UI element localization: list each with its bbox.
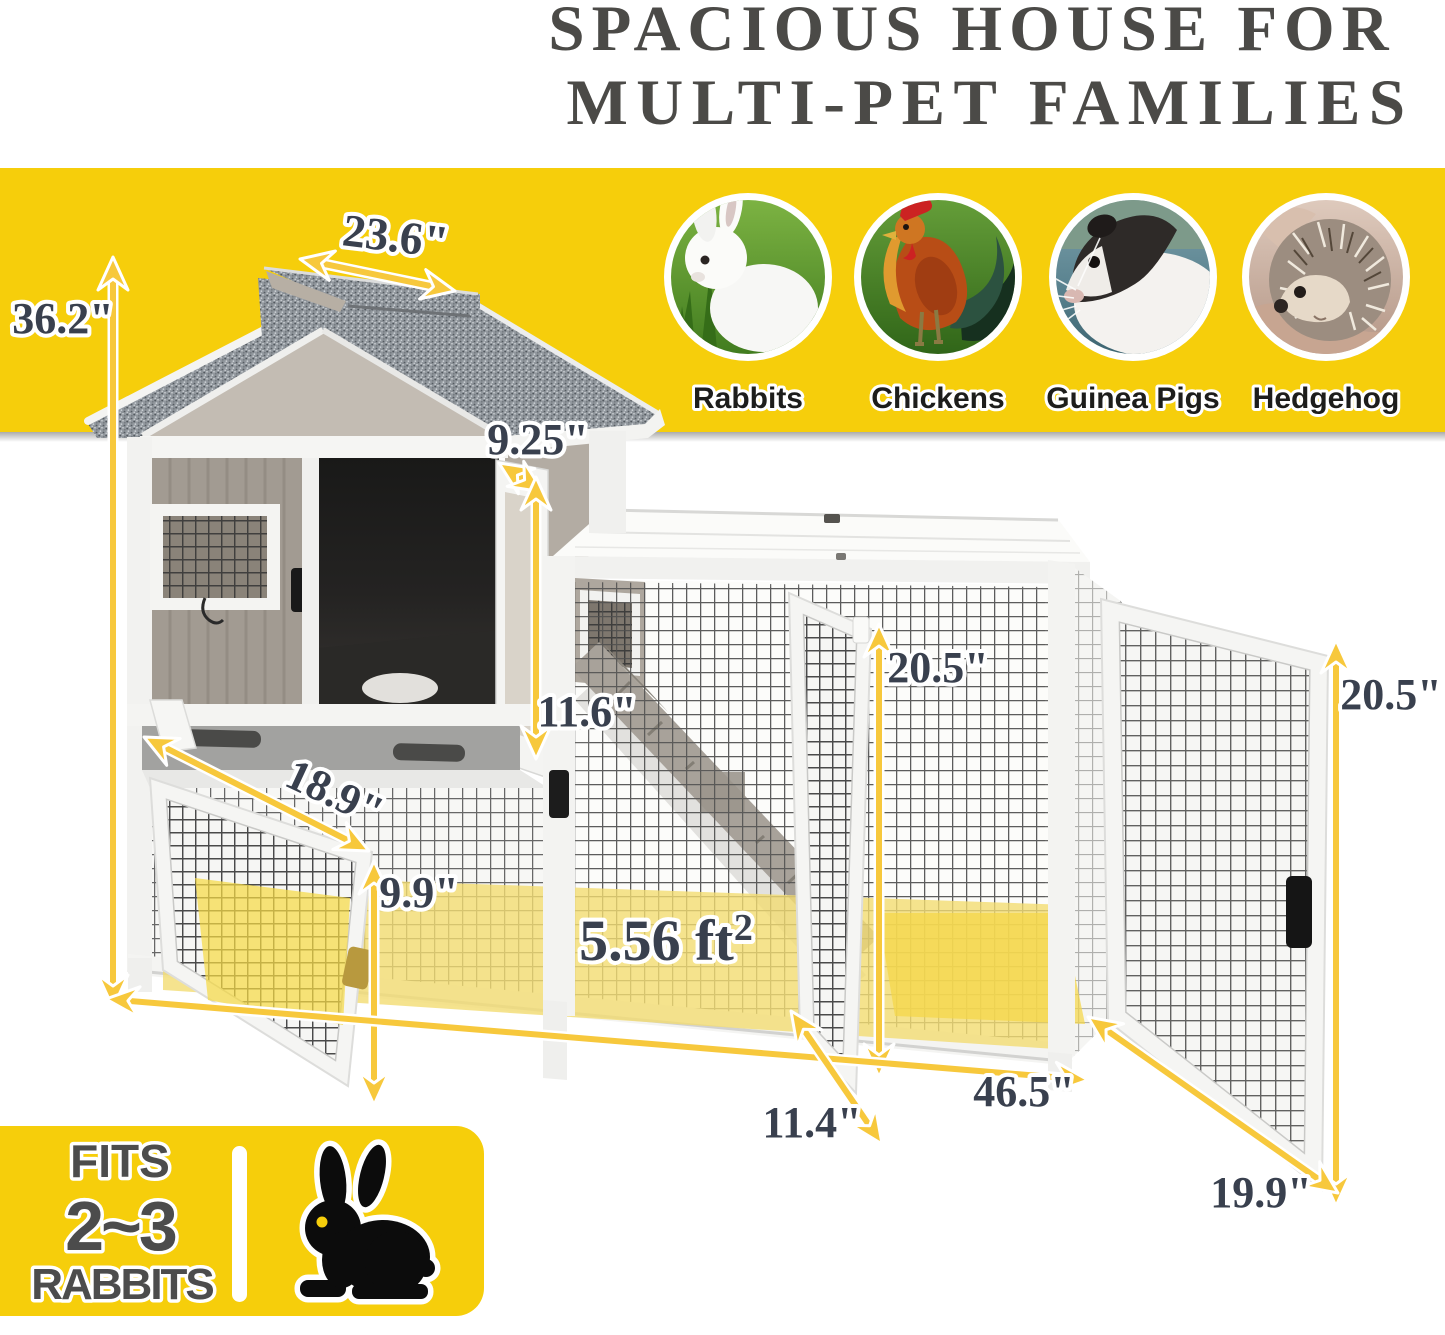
svg-text:11.6": 11.6" [538,687,637,736]
svg-text:FITS: FITS [70,1135,170,1187]
svg-text:46.5": 46.5" [973,1067,1074,1116]
svg-text:Rabbits: Rabbits [693,382,803,415]
svg-text:20.5": 20.5" [1340,670,1441,719]
svg-text:Guinea Pigs: Guinea Pigs [1046,382,1219,415]
svg-text:19.9": 19.9" [1210,1168,1311,1217]
svg-text:2~3: 2~3 [65,1187,176,1265]
svg-text:Hedgehog: Hedgehog [1253,382,1400,415]
svg-text:9.9": 9.9" [379,868,458,917]
svg-text:9.25": 9.25" [487,415,588,464]
svg-text:11.4": 11.4" [763,1098,862,1147]
svg-text:5.56 ft2: 5.56 ft2 [579,907,753,973]
svg-text:RABBITS: RABBITS [31,1260,213,1309]
svg-text:Chickens: Chickens [871,382,1004,415]
svg-text:36.2": 36.2" [12,294,113,343]
svg-text:MULTI-PET FAMILIES: MULTI-PET FAMILIES [566,67,1413,139]
svg-text:SPACIOUS HOUSE FOR: SPACIOUS HOUSE FOR [548,0,1395,65]
svg-text:20.5": 20.5" [887,643,988,692]
